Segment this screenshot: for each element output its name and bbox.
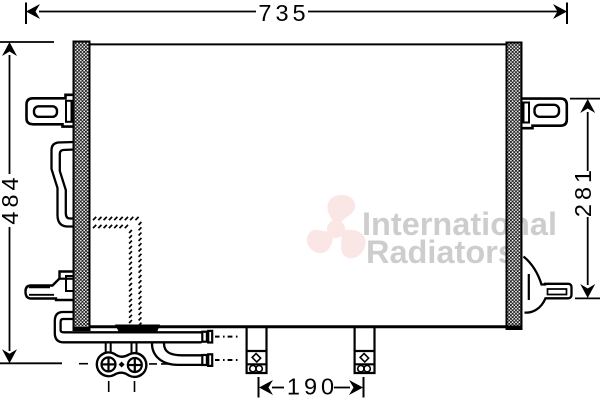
svg-text:281: 281 (570, 166, 596, 217)
svg-text:735: 735 (258, 0, 309, 26)
svg-text:484: 484 (0, 173, 23, 224)
svg-text:190: 190 (287, 374, 338, 400)
svg-text:Radiators: Radiators (366, 234, 516, 270)
